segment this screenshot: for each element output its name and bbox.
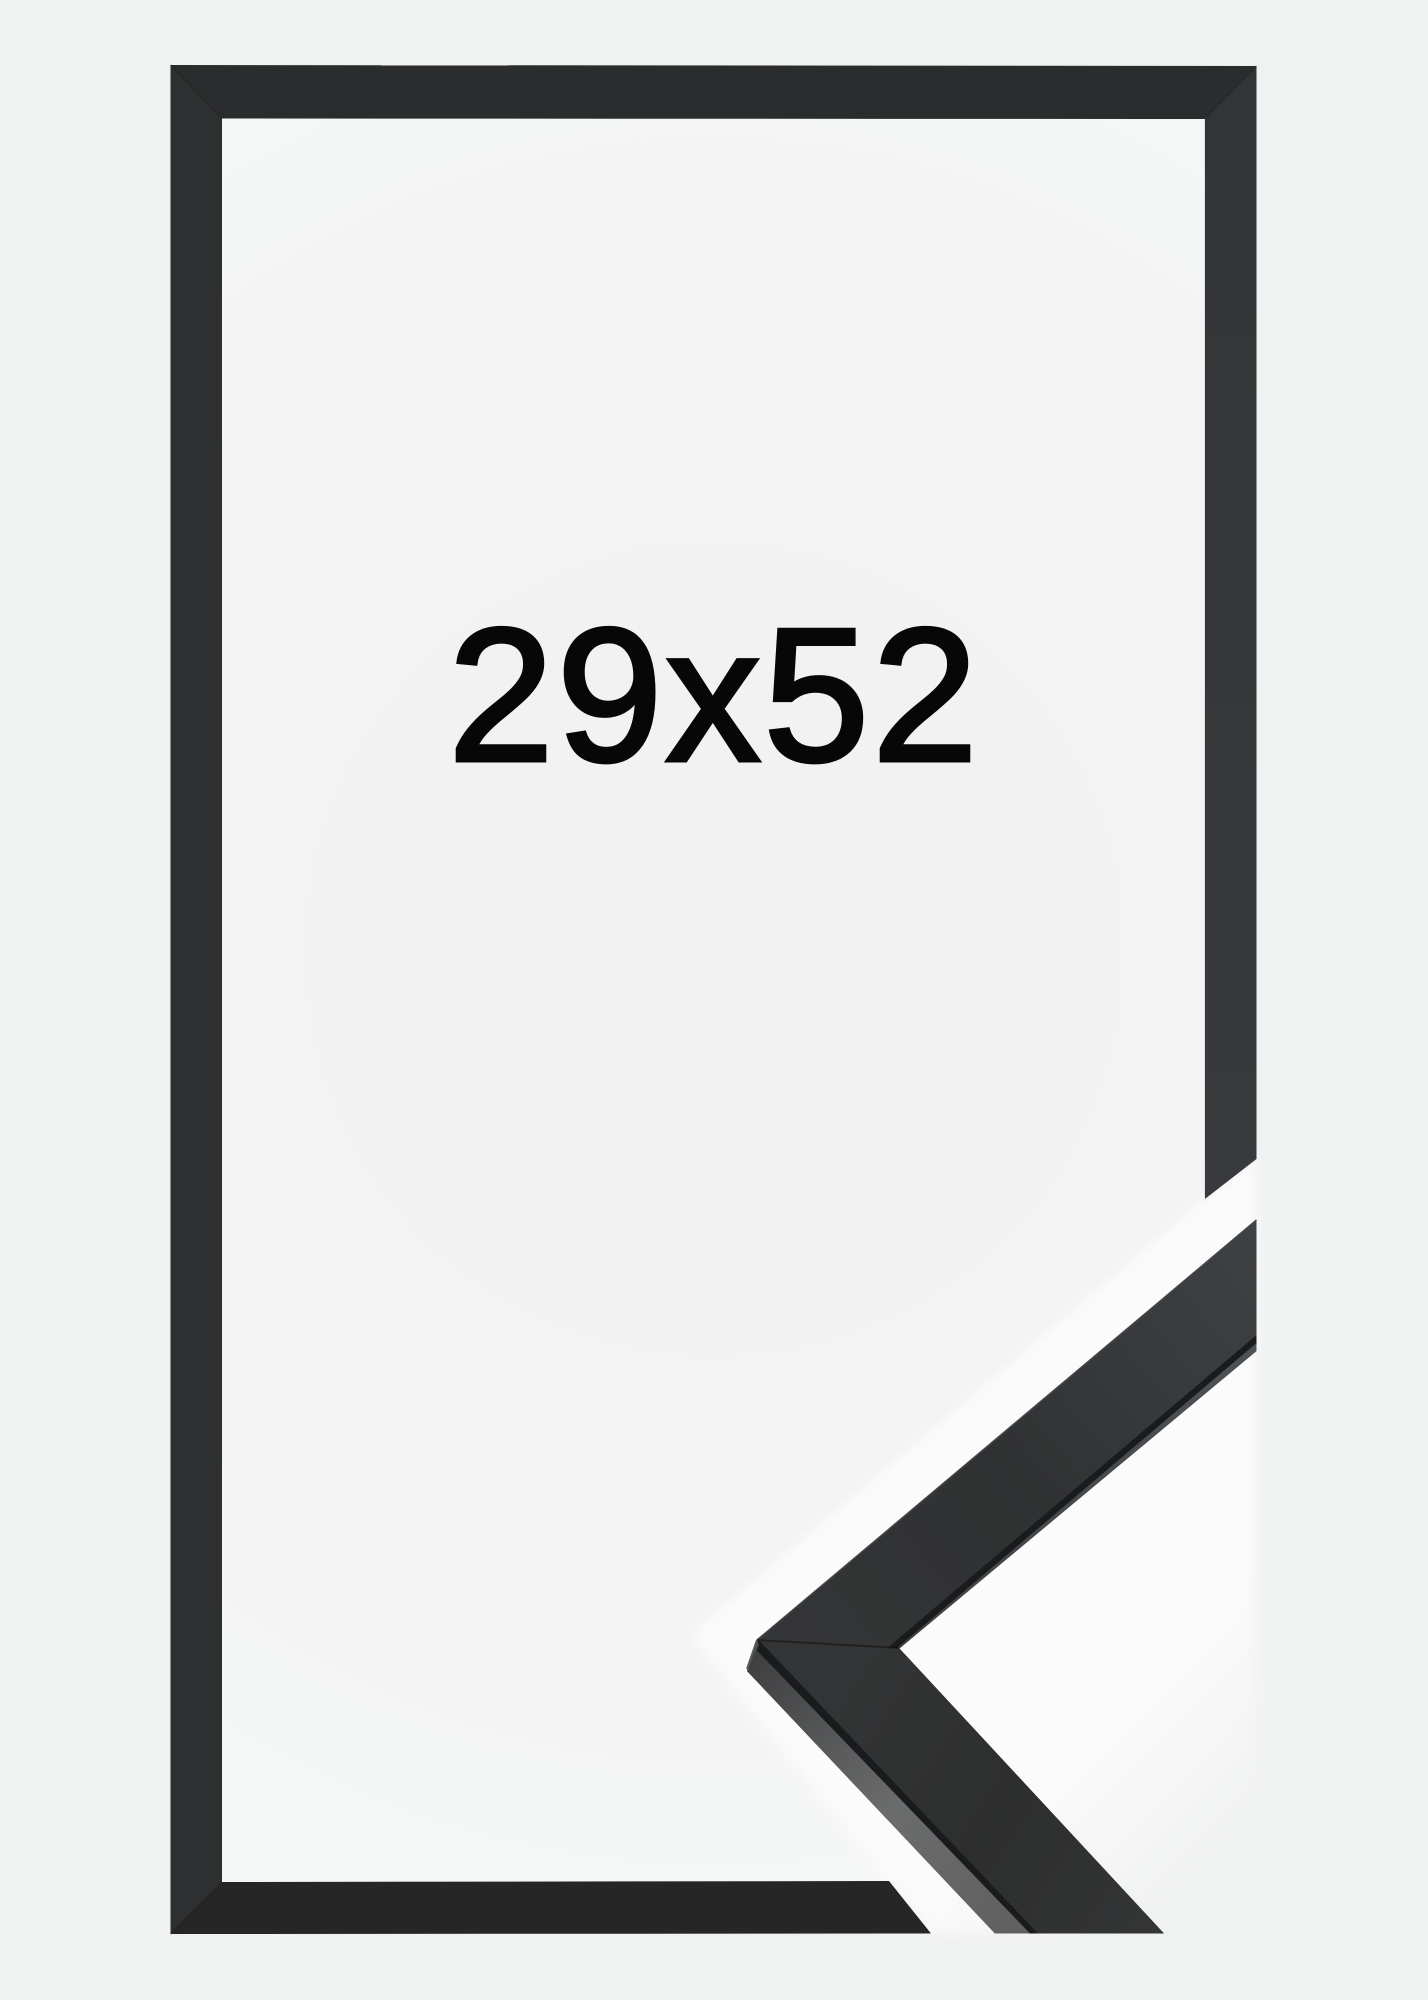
- svg-text:29x52: 29x52: [448, 590, 981, 802]
